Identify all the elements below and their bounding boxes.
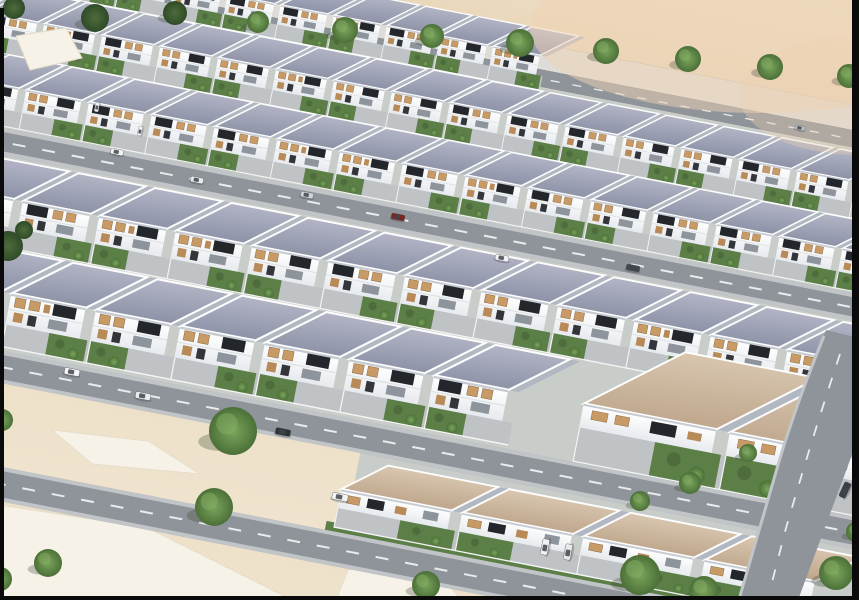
window-upper (268, 252, 279, 262)
window-lower (27, 104, 35, 112)
window-upper (637, 324, 648, 334)
window-upper (248, 1, 256, 8)
window-upper (9, 19, 17, 27)
window-upper (113, 317, 125, 328)
tree-canopy (15, 221, 33, 239)
window-lower (90, 116, 98, 124)
window-upper (598, 134, 606, 142)
window-lower (435, 394, 446, 405)
window-upper (178, 234, 189, 244)
window-upper (553, 195, 562, 203)
window-upper (564, 197, 573, 205)
window-lower (350, 378, 361, 389)
window-upper (353, 156, 362, 164)
window-upper (408, 279, 419, 289)
window-upper (484, 294, 495, 304)
window-upper (358, 269, 369, 279)
window-upper (689, 221, 698, 229)
window-upper (636, 141, 644, 149)
window-upper (52, 210, 63, 220)
window-upper (39, 95, 48, 103)
tree-highlight (841, 67, 852, 78)
window-lower (181, 345, 192, 356)
window-lower (441, 48, 448, 55)
window-upper (371, 272, 382, 282)
window-upper (468, 178, 477, 186)
window-upper (113, 109, 122, 117)
window-upper (626, 139, 634, 147)
window-upper (593, 203, 602, 211)
window-lower (215, 140, 223, 148)
window-upper (115, 222, 126, 232)
tree-highlight (38, 553, 51, 566)
tree-highlight (201, 493, 218, 510)
tree-highlight (742, 446, 750, 454)
window-upper (250, 136, 259, 144)
window-lower (341, 165, 349, 173)
window-upper (301, 11, 309, 18)
tree-highlight (633, 494, 642, 503)
window-lower (253, 263, 263, 273)
tree-highlight (250, 14, 260, 24)
window-upper (810, 175, 818, 183)
window-upper (650, 326, 661, 336)
window-upper (394, 94, 402, 102)
window-upper (694, 152, 702, 160)
tree-highlight (824, 560, 839, 575)
window-lower (625, 149, 633, 157)
tree-canopy (163, 1, 187, 25)
window-upper (336, 83, 344, 91)
window-lower (330, 277, 340, 287)
window-lower (567, 138, 575, 146)
tree-highlight (510, 33, 523, 46)
window-lower (278, 153, 286, 161)
window-upper (290, 144, 299, 152)
window-lower (404, 177, 412, 185)
window-lower (635, 337, 645, 347)
window-upper (604, 205, 613, 213)
window-lower (780, 250, 788, 258)
window-lower (277, 82, 285, 90)
window-upper (678, 219, 687, 227)
window-upper (588, 132, 596, 140)
window-upper (467, 386, 479, 397)
window-lower (97, 329, 108, 340)
left-edge-bar (0, 8, 4, 600)
window-upper (790, 353, 801, 363)
window-upper (561, 309, 572, 319)
window-upper (772, 168, 780, 176)
window-upper (804, 244, 813, 252)
tree-highlight (336, 20, 348, 32)
window-lower (281, 17, 288, 24)
window-lower (843, 262, 851, 270)
window-upper (352, 363, 364, 374)
window-upper (815, 246, 824, 254)
window-upper (481, 388, 493, 399)
tree-highlight (626, 560, 644, 578)
window-upper (172, 51, 180, 59)
window-lower (718, 238, 726, 246)
window-upper (288, 73, 296, 81)
window-upper (684, 150, 692, 158)
window-upper (198, 333, 210, 344)
window-upper (278, 72, 286, 80)
tree-highlight (424, 27, 435, 38)
window-upper (124, 112, 133, 120)
window-upper (29, 300, 41, 311)
window-lower (466, 189, 474, 197)
window-lower (228, 6, 235, 13)
window-upper (28, 93, 37, 101)
window-upper (310, 13, 318, 20)
window-lower (559, 322, 569, 332)
window-upper (342, 154, 351, 162)
window-upper (451, 40, 459, 47)
window-upper (800, 173, 808, 181)
window-lower (741, 172, 749, 180)
window-upper (176, 122, 185, 130)
window-upper (540, 123, 548, 131)
window-upper (438, 173, 447, 181)
right-edge-bar (852, 0, 859, 600)
window-lower (655, 226, 663, 234)
window-upper (421, 282, 432, 292)
window-lower (335, 93, 343, 101)
window-lower (266, 362, 277, 373)
window-lower (483, 307, 493, 317)
window-upper (727, 341, 738, 351)
window-upper (741, 231, 750, 239)
tree-highlight (216, 413, 238, 435)
window-upper (752, 234, 761, 242)
window-lower (494, 58, 501, 65)
window-upper (183, 331, 195, 342)
window-upper (65, 213, 76, 223)
aerial-development-rendering (0, 0, 859, 600)
window-upper (530, 121, 538, 129)
window-lower (798, 183, 806, 191)
window-upper (282, 350, 294, 361)
window-upper (187, 124, 196, 132)
window-lower (153, 128, 161, 136)
window-upper (230, 62, 238, 70)
window-upper (162, 49, 170, 57)
window-lower (388, 37, 395, 44)
window-upper (191, 237, 202, 247)
window-upper (19, 21, 27, 29)
tree-highlight (416, 575, 429, 588)
window-upper (102, 220, 113, 230)
window-lower (393, 104, 401, 112)
window-lower (529, 201, 537, 209)
window-upper (239, 134, 248, 142)
tree-canopy (81, 4, 109, 32)
bottom-edge-bar (0, 596, 859, 600)
window-upper (125, 42, 133, 50)
window-upper (135, 44, 143, 52)
tree-highlight (682, 475, 692, 485)
window-upper (407, 32, 415, 39)
window-upper (268, 347, 280, 358)
window-lower (12, 312, 23, 323)
window-upper (14, 298, 26, 309)
window-upper (220, 60, 228, 68)
window-upper (367, 366, 379, 377)
window-upper (427, 170, 436, 178)
window-lower (451, 115, 459, 123)
window-upper (762, 166, 770, 174)
tree-highlight (694, 580, 708, 594)
tree-highlight (679, 49, 691, 61)
window-upper (479, 180, 488, 188)
scene-canvas (0, 0, 859, 600)
window-upper (482, 111, 490, 119)
window-upper (279, 142, 288, 150)
window-upper (99, 314, 111, 325)
window-lower (100, 233, 110, 243)
tree-highlight (761, 57, 773, 69)
window-upper (472, 109, 480, 117)
window-upper (497, 296, 508, 306)
window-lower (177, 248, 187, 258)
window-upper (404, 96, 412, 104)
window-upper (255, 249, 266, 259)
window-lower (161, 59, 169, 67)
window-lower (509, 127, 517, 135)
window-lower (683, 160, 691, 168)
window-lower (592, 214, 600, 222)
window-lower (406, 292, 416, 302)
window-lower (219, 70, 227, 78)
window-upper (257, 3, 265, 10)
window-lower (103, 48, 111, 56)
window-upper (346, 85, 354, 93)
tree-highlight (597, 41, 609, 53)
window-upper (574, 311, 585, 321)
window-upper (714, 339, 725, 349)
